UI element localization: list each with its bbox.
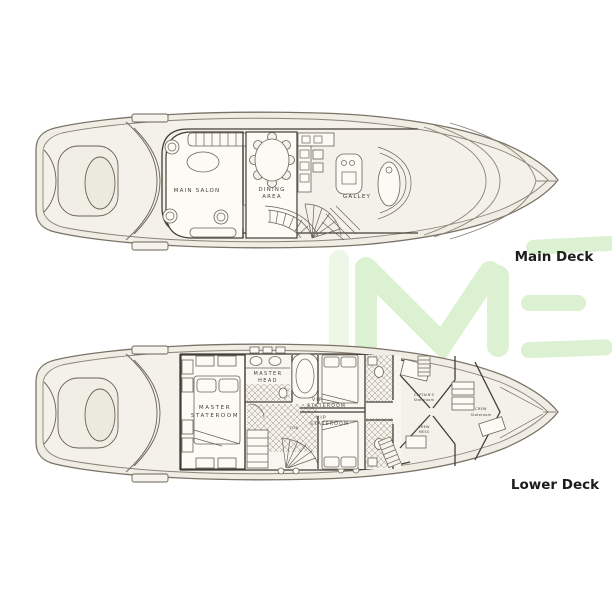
master-stateroom: MASTER STATEROOM [181,355,245,469]
captain-label-2: Stateroom [414,398,435,402]
watermark-letter-m [366,268,498,346]
vip-fwd-label-1: VIP [312,397,323,403]
crew-mess-label-1: CREW [418,425,430,429]
dining-area-label-2: AREA [262,194,282,200]
dining-area-label-1: DINING [258,187,285,193]
main-deck-plan: MAIN SALON DINING AREA [36,112,558,250]
vip-fwd-label-2: STATEROOM [307,403,346,409]
yacht-deck-plans: MAIN SALON DINING AREA [0,0,612,601]
watermark-letter-i [329,250,349,358]
lower-deck-caption: Lower Deck [511,477,600,493]
crew-cabin-label-1: CREW [475,407,487,411]
galley-label: GALLEY [343,194,371,200]
crew-cabin-label-2: Stateroom [471,413,492,417]
master-head-label-2: HEAD [258,378,278,384]
master-stateroom-label-1: MASTER [199,405,231,411]
master-head-label-1: MASTER [254,371,283,377]
main-salon-label: MAIN SALON [174,188,221,194]
lower-deck-plan: MASTER STATEROOM MASTER HEAD TUB [36,344,558,482]
captain-label-1: CAPTAIN'S [414,393,434,397]
vip-aft-label-1: VIP [316,415,327,421]
crew-mess-label-2: MESS [419,430,430,434]
deck-plans-svg: MAIN SALON DINING AREA [0,0,612,601]
main-salon: MAIN SALON [163,132,250,238]
main-deck-caption: Main Deck [515,249,595,265]
tub-label: TUB [288,426,298,430]
master-stateroom-label-2: STATEROOM [191,413,239,419]
vip-aft-label-2: STATEROOM [310,421,349,427]
